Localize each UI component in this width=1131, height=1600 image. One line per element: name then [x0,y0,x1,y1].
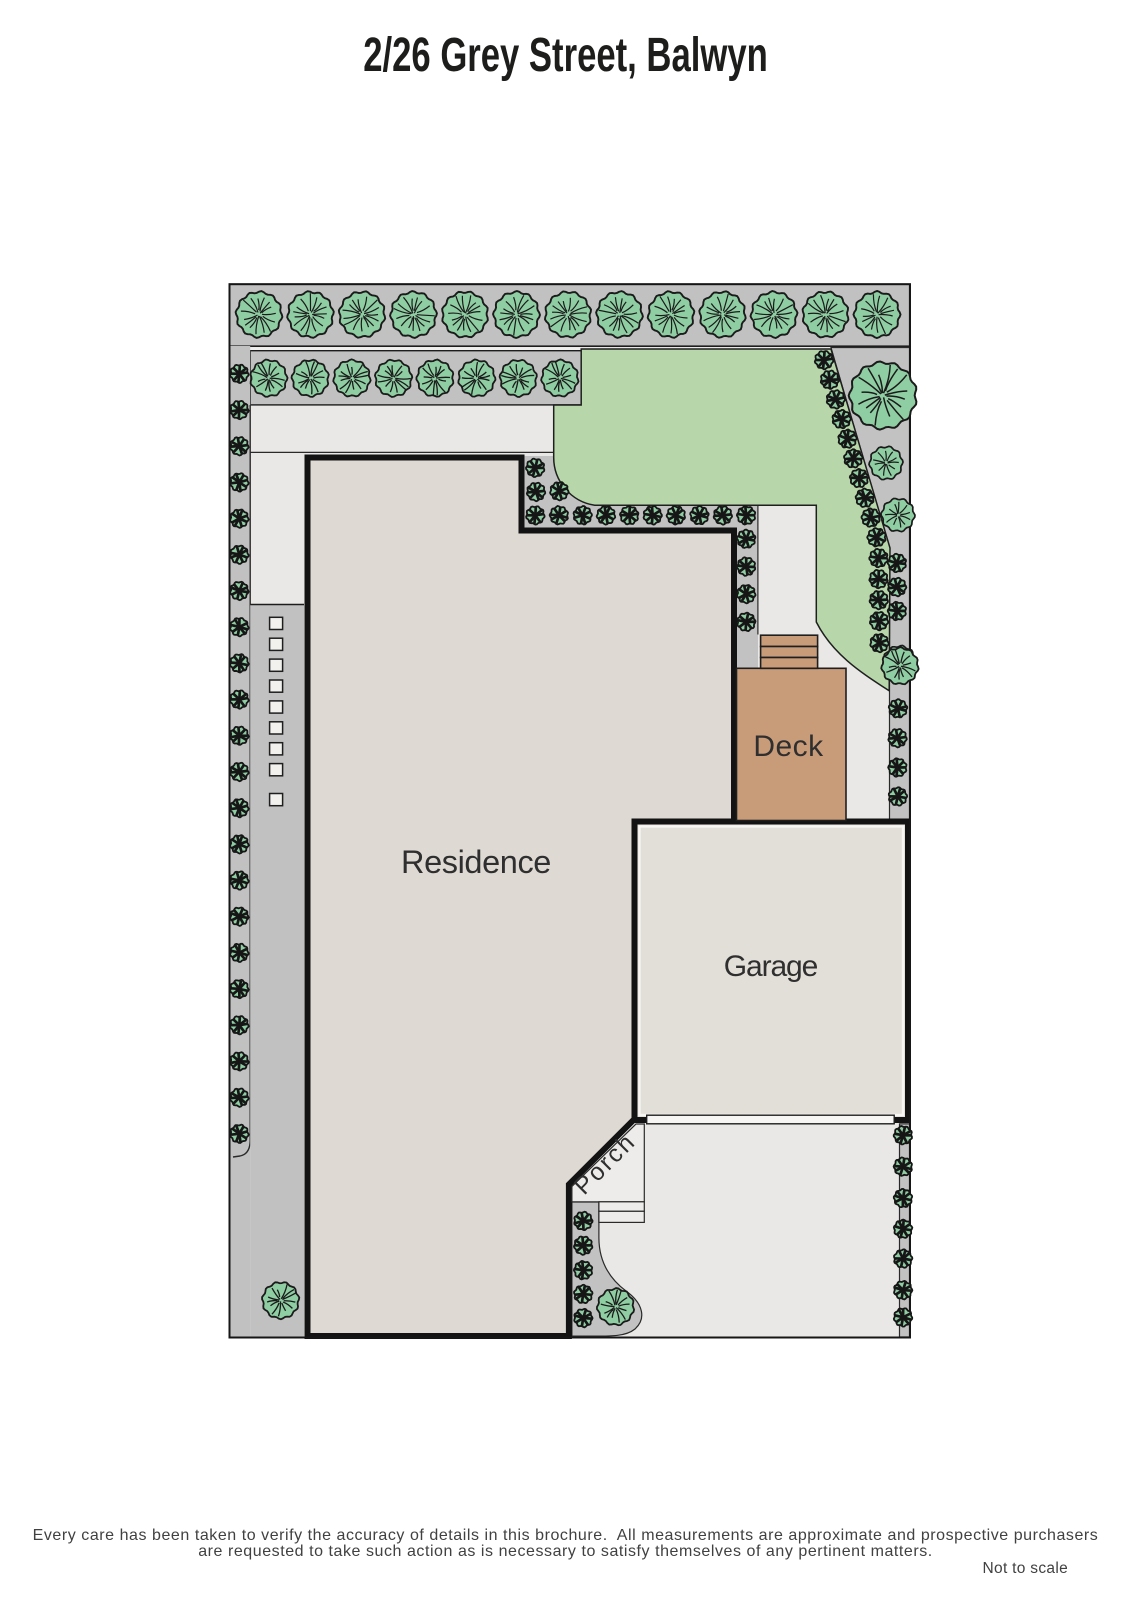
svg-text:Garage: Garage [724,950,818,983]
svg-text:Deck: Deck [753,730,824,763]
svg-text:Residence: Residence [401,844,551,880]
